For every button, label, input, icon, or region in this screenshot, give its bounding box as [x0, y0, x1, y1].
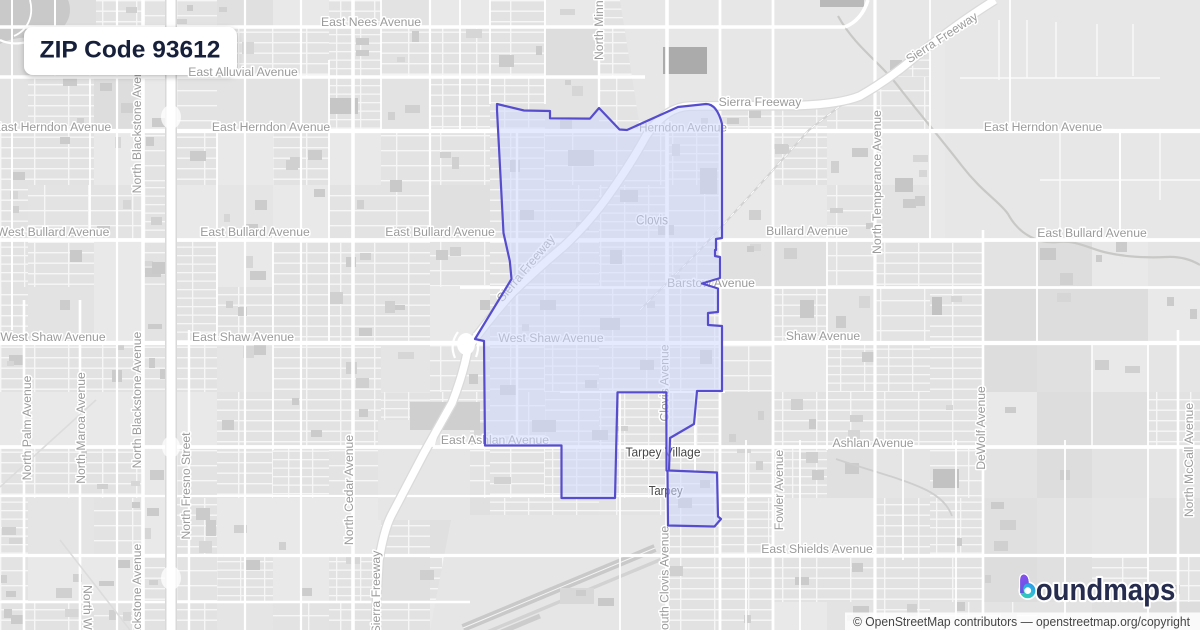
svg-text:North Maroa Avenue: North Maroa Avenue	[74, 372, 88, 484]
svg-text:oundmaps: oundmaps	[1036, 572, 1176, 607]
svg-text:North Palm Avenue: North Palm Avenue	[20, 375, 34, 480]
svg-text:East Shields Avenue: East Shields Avenue	[761, 542, 873, 556]
svg-text:ZIP Code 93612: ZIP Code 93612	[40, 37, 221, 64]
svg-text:North Blackstone Avenue: North Blackstone Avenue	[130, 331, 144, 468]
svg-text:© OpenStreetMap contributors —: © OpenStreetMap contributors — openstree…	[853, 614, 1190, 629]
svg-text:East Shaw Avenue: East Shaw Avenue	[192, 330, 294, 344]
svg-text:Sierra Freeway: Sierra Freeway	[369, 550, 383, 630]
svg-text:East Alluvial Avenue: East Alluvial Avenue	[188, 65, 298, 79]
svg-text:East Bullard Avenue: East Bullard Avenue	[200, 225, 310, 239]
svg-text:Fowler Avenue: Fowler Avenue	[772, 450, 786, 531]
svg-text:South Clovis Avenue: South Clovis Avenue	[658, 526, 672, 630]
svg-text:North Cedar Avenue: North Cedar Avenue	[342, 435, 356, 545]
svg-text:East Bullard Avenue: East Bullard Avenue	[1037, 226, 1147, 240]
svg-text:Shaw Avenue: Shaw Avenue	[786, 329, 861, 343]
svg-text:North Wilson Avenue: North Wilson Avenue	[81, 585, 95, 630]
svg-text:North Blackstone Avenue: North Blackstone Avenue	[130, 56, 144, 193]
svg-text:North McCall Avenue: North McCall Avenue	[1182, 403, 1196, 517]
svg-text:Tarpey Village: Tarpey Village	[626, 446, 701, 460]
svg-text:North Fresno Street: North Fresno Street	[179, 432, 193, 540]
svg-text:Bullard Avenue: Bullard Avenue	[766, 224, 848, 238]
svg-text:East Herndon Avenue: East Herndon Avenue	[212, 120, 331, 134]
svg-text:East Bullard Avenue: East Bullard Avenue	[385, 225, 495, 239]
svg-text:Sierra Freeway: Sierra Freeway	[719, 95, 803, 109]
svg-text:DeWolf Avenue: DeWolf Avenue	[974, 386, 988, 470]
svg-text:West Bullard Avenue: West Bullard Avenue	[0, 225, 110, 239]
svg-text:East Herndon Avenue: East Herndon Avenue	[984, 120, 1103, 134]
svg-text:East Herndon Avenue: East Herndon Avenue	[0, 120, 111, 134]
svg-text:East Nees Avenue: East Nees Avenue	[321, 15, 421, 29]
svg-text:North Temperance Avenue: North Temperance Avenue	[870, 110, 884, 254]
svg-text:North Minnewawa Avenue: North Minnewawa Avenue	[592, 0, 606, 60]
svg-text:Ashlan Avenue: Ashlan Avenue	[832, 436, 913, 450]
svg-text:West Shaw Avenue: West Shaw Avenue	[0, 330, 105, 344]
svg-text:North Blackstone Avenue: North Blackstone Avenue	[130, 543, 144, 630]
